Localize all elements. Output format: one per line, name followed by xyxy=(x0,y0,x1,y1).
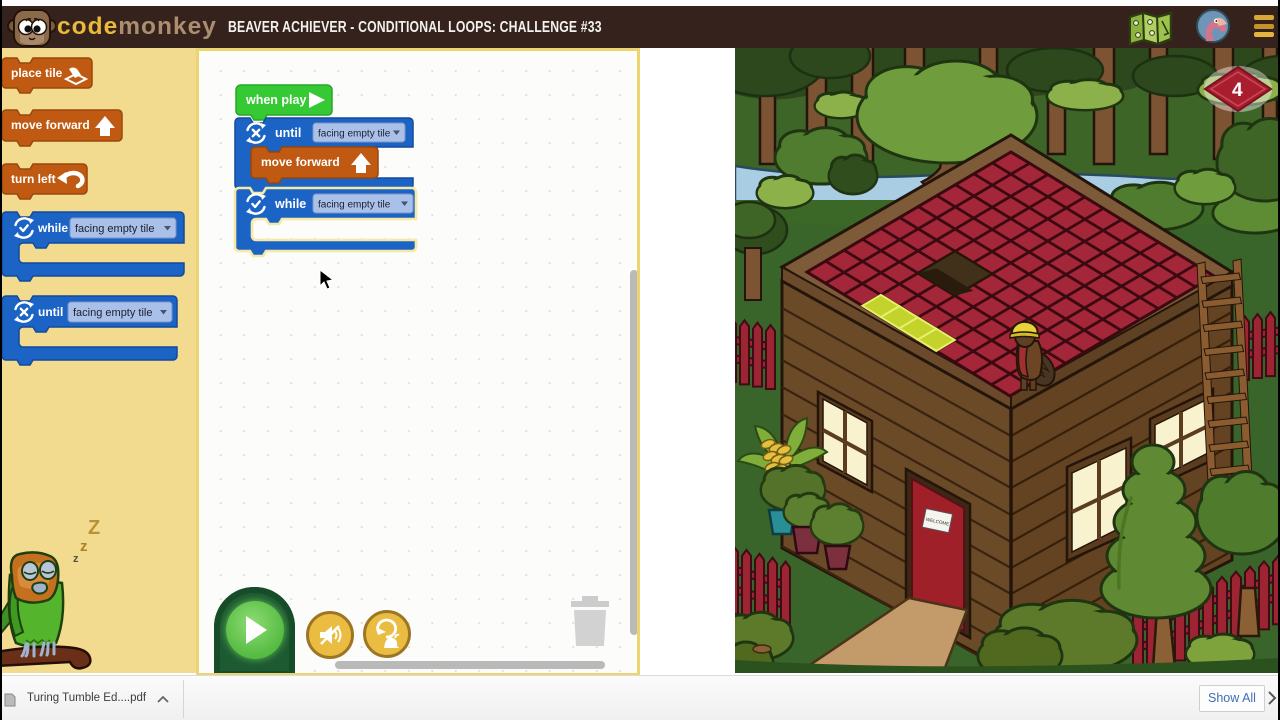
svg-text:facing empty tile: facing empty tile xyxy=(318,200,391,211)
svg-text:facing empty tile: facing empty tile xyxy=(73,307,152,319)
svg-text:z: z xyxy=(80,538,88,555)
svg-text:Z: Z xyxy=(88,517,100,539)
svg-text:while: while xyxy=(274,197,306,211)
svg-text:when play: when play xyxy=(245,93,306,107)
svg-text:z: z xyxy=(73,553,79,565)
svg-text:turn left: turn left xyxy=(11,172,56,186)
svg-text:facing empty tile: facing empty tile xyxy=(75,223,154,235)
svg-text:while: while xyxy=(37,221,68,235)
svg-text:facing empty tile: facing empty tile xyxy=(318,129,391,140)
svg-text:place tile: place tile xyxy=(11,66,63,80)
svg-text:until: until xyxy=(38,305,63,319)
svg-text:move forward: move forward xyxy=(11,118,90,132)
svg-text:move forward: move forward xyxy=(261,155,340,169)
svg-text:until: until xyxy=(275,126,301,140)
svg-text:4: 4 xyxy=(1232,80,1243,101)
